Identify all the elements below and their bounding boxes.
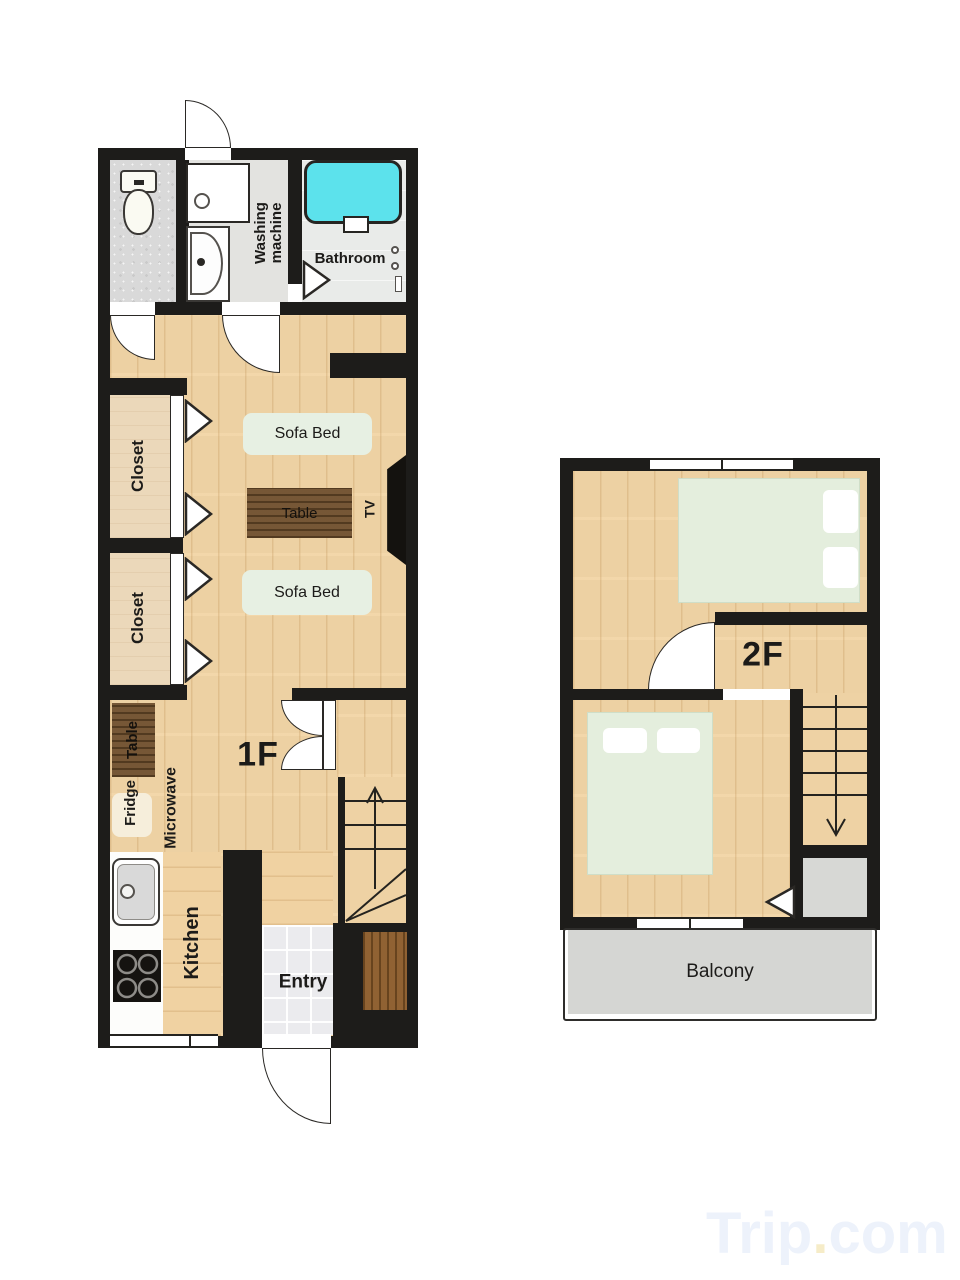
- microwave-label: Microwave: [162, 767, 179, 849]
- closet-top-door-track: [170, 395, 184, 538]
- living-table: Table: [247, 488, 352, 538]
- laundry-top-door-arc: [185, 100, 231, 148]
- bathtub: [304, 160, 402, 224]
- bedroom-top-window: [650, 458, 793, 471]
- washroom-faucet-icon: [197, 258, 205, 266]
- balcony: Balcony: [563, 928, 877, 1021]
- floor-plan-page: Washing machine Bathroom Closet: [0, 0, 960, 1280]
- washing-machine: [186, 163, 250, 223]
- entry-step: [363, 932, 407, 1010]
- floor1-plan: Washing machine Bathroom Closet: [98, 148, 418, 1048]
- kitchen-label: Kitchen: [182, 906, 204, 979]
- stairs-side-wall: [338, 777, 345, 923]
- closet-top-folding-door-icon: [184, 492, 214, 536]
- balcony-label: Balcony: [686, 961, 754, 983]
- wall-segment: [790, 689, 803, 853]
- wall-segment: [803, 845, 867, 858]
- shower-control-icon: [391, 246, 399, 254]
- closet-bottom-label: Closet: [129, 592, 147, 644]
- understair-door-leaf: [323, 700, 336, 770]
- entry-label: Entry: [279, 973, 328, 994]
- kitchen-table-label: Table: [125, 721, 141, 759]
- wall-segment: [110, 538, 183, 553]
- toilet-bowl: [123, 189, 154, 235]
- floor2-title: 2F: [742, 637, 784, 674]
- tv-label: TV: [362, 500, 377, 518]
- wall-segment: [110, 685, 187, 700]
- entry-doorway: [262, 1034, 331, 1048]
- closet-bottom-door-track: [170, 553, 184, 685]
- stairs-up: [345, 777, 406, 923]
- entry-door-arc: [262, 1048, 331, 1124]
- understair-closet-floor: [803, 858, 867, 917]
- bathroom-folding-door-icon: [302, 260, 332, 300]
- closet-bottom-folding-door-icon: [184, 557, 214, 601]
- wall-segment: [292, 688, 406, 700]
- closet-top-label: Closet: [129, 440, 147, 492]
- sofa-bed-bottom-label: Sofa Bed: [274, 584, 340, 602]
- stair-landing-floor: [262, 850, 333, 925]
- sofa-bed-top-label: Sofa Bed: [275, 425, 341, 443]
- wall-segment: [330, 353, 406, 378]
- entry-partition-wall: [223, 850, 262, 1036]
- pillow: [657, 728, 700, 753]
- watermark-suffix: com: [828, 1201, 947, 1266]
- sofa-bed-bottom: Sofa Bed: [242, 570, 372, 615]
- sofa-bed-top: Sofa Bed: [243, 413, 372, 455]
- window-mullion-icon: [689, 919, 691, 928]
- trip-com-watermark: Trip.com: [706, 1200, 948, 1267]
- pillow: [603, 728, 647, 753]
- stairs-down-treads-icon: [803, 693, 867, 845]
- floor1-title: 1F: [237, 737, 279, 774]
- closet-bottom-folding-door-icon: [184, 639, 214, 683]
- fridge-label: Fridge: [123, 780, 139, 826]
- bathtub-faucet-deck: [343, 216, 369, 233]
- wall-segment: [573, 689, 723, 700]
- closet-top-folding-door-icon: [184, 399, 214, 443]
- toilet-flush-button: [134, 180, 144, 185]
- laundry-top-doorway: [185, 148, 231, 160]
- shower-control-icon: [391, 262, 399, 270]
- stairs-down: [803, 693, 867, 845]
- closet-folding-door-icon: [760, 885, 796, 919]
- kitchen-window: [110, 1034, 218, 1048]
- watermark-brand: Trip: [706, 1201, 812, 1266]
- floor2-plan: 2F: [560, 458, 880, 930]
- stove: [113, 950, 161, 1002]
- balcony-floor: Balcony: [568, 930, 872, 1014]
- washroom-doorway: [222, 302, 280, 315]
- wall-segment: [715, 612, 867, 625]
- shower-bar-icon: [395, 276, 402, 292]
- kitchen-sink-drain-icon: [120, 884, 135, 899]
- window-mullion-icon: [721, 460, 723, 469]
- washroom-bathroom-doorway: [288, 284, 302, 302]
- watermark-dot: .: [812, 1201, 828, 1266]
- wall-segment: [110, 378, 187, 395]
- bedroom-bottom-doorway: [723, 689, 790, 700]
- pillow: [823, 547, 858, 588]
- stairs-up-treads-icon: [345, 777, 406, 923]
- toilet-doorway: [110, 302, 155, 315]
- washing-machine-label: Washing machine: [253, 202, 285, 264]
- living-table-label: Table: [282, 505, 318, 522]
- understair-storage-floor: [337, 700, 406, 777]
- washing-machine-door-icon: [194, 193, 210, 209]
- window-mullion-icon: [189, 1036, 191, 1046]
- pillow: [823, 490, 858, 533]
